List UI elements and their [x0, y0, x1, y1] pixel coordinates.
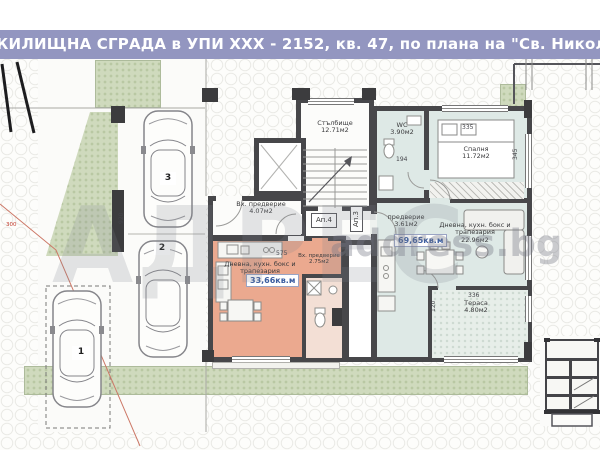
plan-title: ЖИЛИЩНА СГРАДА в УПИ XXX - 2152, кв. 47,… [0, 35, 600, 53]
label-bedroom: Спалня11.72м2 [444, 146, 508, 161]
bath-fixtures-apt4 [307, 281, 337, 327]
label-apt4-entry: Вх. предверие4.07м2 [230, 201, 292, 216]
parking-spot-2-number: 2 [154, 242, 170, 255]
title-bar: ЖИЛИЩНА СГРАДА в УПИ XXX - 2152, кв. 47,… [0, 30, 600, 59]
parking-spot-1-number: 1 [72, 346, 90, 360]
dim-345: 345 [512, 149, 519, 160]
dim-920: 920 [118, 213, 125, 224]
label-staircase: Стълбище12.71м2 [298, 120, 372, 135]
dim-335: 335 [462, 124, 473, 131]
stairs-arrow [309, 160, 349, 202]
apt4-total-area: 33,66кв.м [246, 274, 299, 287]
label-terrace: Тераса4.80м2 [446, 300, 506, 315]
label-wc: WC3.90м2 [380, 122, 424, 137]
floor-plan-canvas: Стълбище12.71м2 WC3.90м2 Спалня11.72м2 п… [0, 0, 600, 450]
parking-spot-3-number: 3 [160, 172, 176, 185]
stairs-arrowhead [344, 156, 352, 167]
kitchen-apt3 [378, 240, 395, 311]
dining-set-apt4 [220, 300, 261, 321]
apt3-total-area: 69,65кв.м [394, 234, 447, 247]
apt3-badge: Ап.3 [350, 206, 363, 232]
dim-575: 575 [276, 250, 287, 257]
dim-194: 194 [396, 156, 407, 163]
apt4-badge: Ап.4 [311, 213, 337, 228]
dim-300: 300 [6, 222, 17, 228]
elevator-cross-icon [261, 145, 297, 189]
label-apt4-entry2: Вх. предверие2.75м2 [296, 253, 342, 266]
dim-336: 336 [468, 292, 479, 299]
dim-120: 120 [430, 301, 437, 312]
